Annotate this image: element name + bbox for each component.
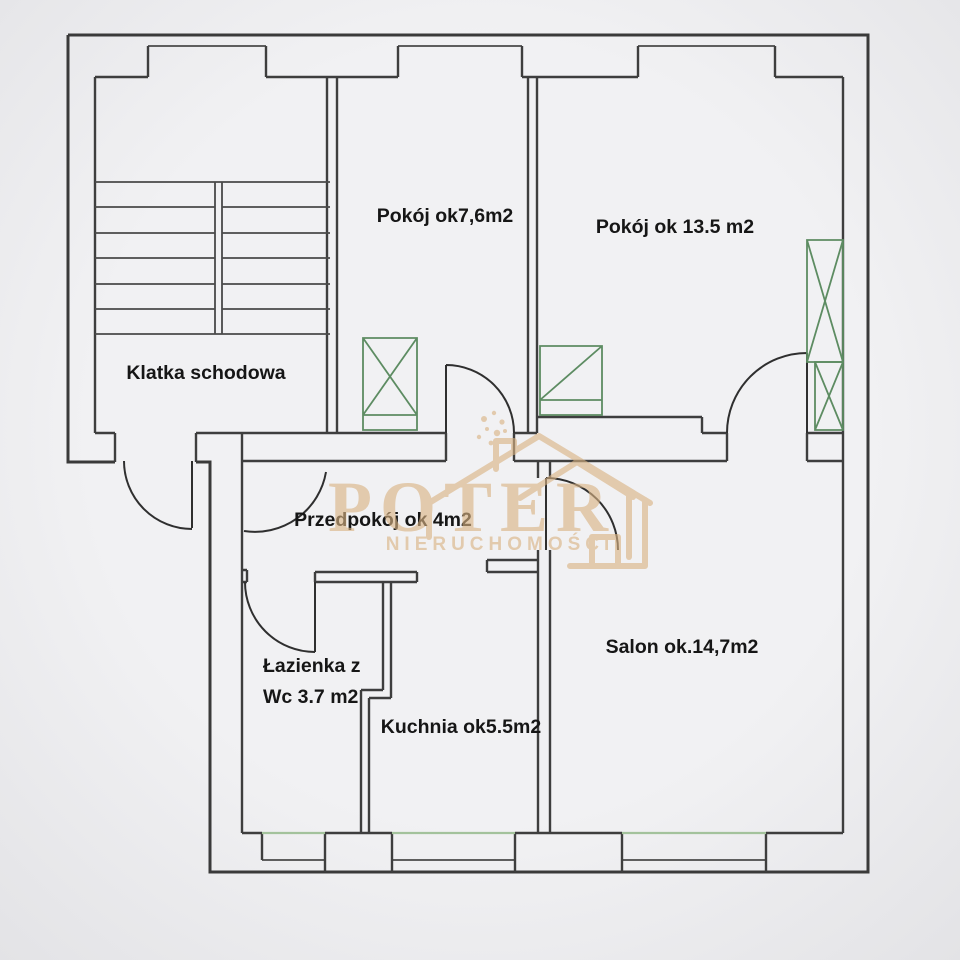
wardrobe-pokoj135-small	[815, 362, 843, 430]
label-lazienka-line1: Łazienka z	[263, 655, 361, 677]
wardrobe-pokoj76	[363, 338, 417, 430]
lazienka-door	[245, 582, 315, 652]
label-pokoj-7-6: Pokój ok7,6m2	[377, 205, 514, 227]
bed-pokoj135	[540, 346, 602, 415]
label-kuchnia: Kuchnia ok5.5m2	[381, 716, 542, 738]
entrance-door	[124, 461, 192, 529]
label-klatka-schodowa: Klatka schodowa	[126, 362, 285, 384]
watermark-subtitle-text: NIERUCHOMOŚCI	[386, 533, 615, 555]
wardrobe-pokoj135-tall	[807, 240, 843, 362]
bottom-wall-piers	[262, 833, 766, 872]
pokoj135-door	[727, 353, 807, 433]
walls	[68, 35, 868, 872]
lazienka-north-wall	[242, 570, 417, 582]
hallway-north-wall	[196, 417, 843, 461]
staircase-stairs	[95, 182, 330, 334]
floor-plan-page: Klatka schodowa Pokój ok7,6m2 Pokój ok 1…	[0, 0, 960, 960]
wall-staircase-pokoj76	[327, 77, 337, 433]
stair-treads	[95, 182, 330, 334]
wall-lazienka-kuchnia	[361, 582, 391, 833]
top-wall-pier-edges	[95, 46, 843, 77]
staircase-bottom-wall	[95, 433, 196, 462]
wall-pokoj76-pokoj135	[528, 77, 537, 433]
label-salon: Salon ok.14,7m2	[606, 636, 759, 658]
label-lazienka-line2: Wc 3.7 m2	[263, 686, 359, 708]
furniture	[363, 240, 843, 430]
floor-plan-svg: Klatka schodowa Pokój ok7,6m2 Pokój ok 1…	[0, 0, 960, 960]
label-pokoj-13-5: Pokój ok 13.5 m2	[596, 216, 754, 238]
exterior-wall	[68, 35, 868, 872]
